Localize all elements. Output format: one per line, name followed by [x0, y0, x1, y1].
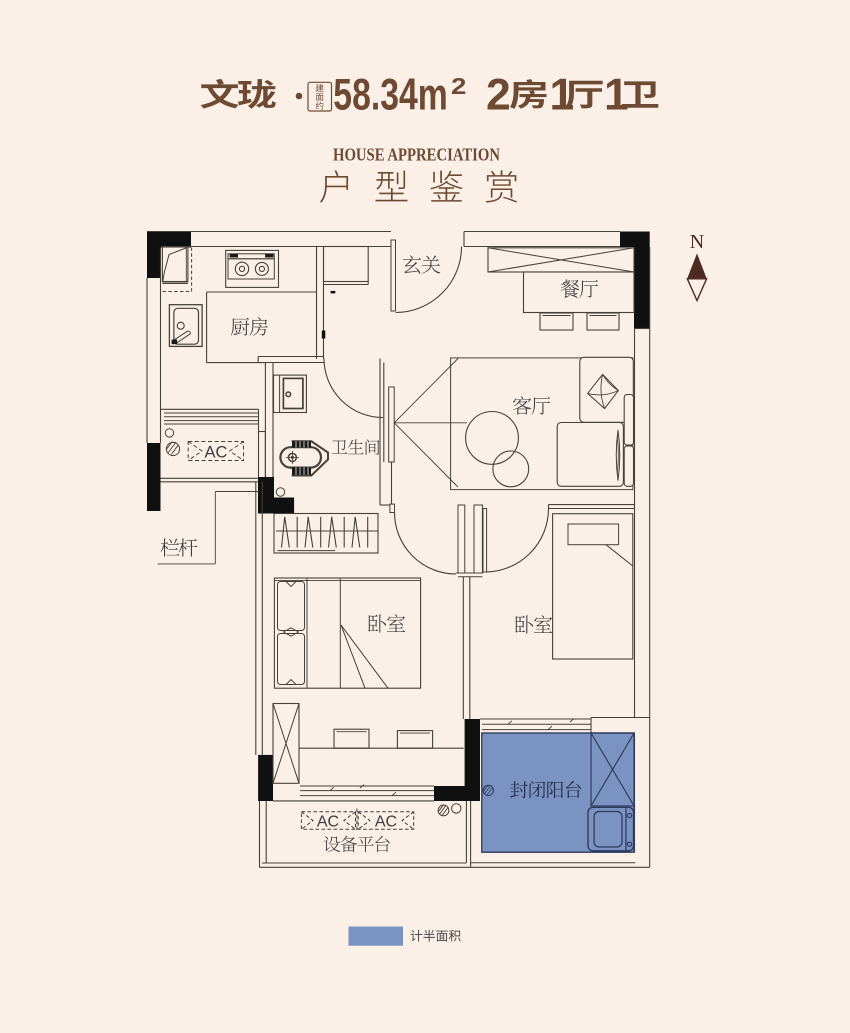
svg-text:58.34m: 58.34m: [333, 71, 448, 120]
svg-text:HOUSE APPRECIATION: HOUSE APPRECIATION: [333, 145, 500, 165]
svg-text:N: N: [690, 231, 704, 253]
svg-text:AC: AC: [205, 444, 228, 462]
svg-text:2: 2: [486, 71, 511, 120]
svg-text:AC: AC: [317, 814, 339, 831]
svg-text:2: 2: [451, 73, 466, 99]
svg-text:1: 1: [604, 71, 629, 120]
svg-text:AC: AC: [375, 814, 397, 831]
